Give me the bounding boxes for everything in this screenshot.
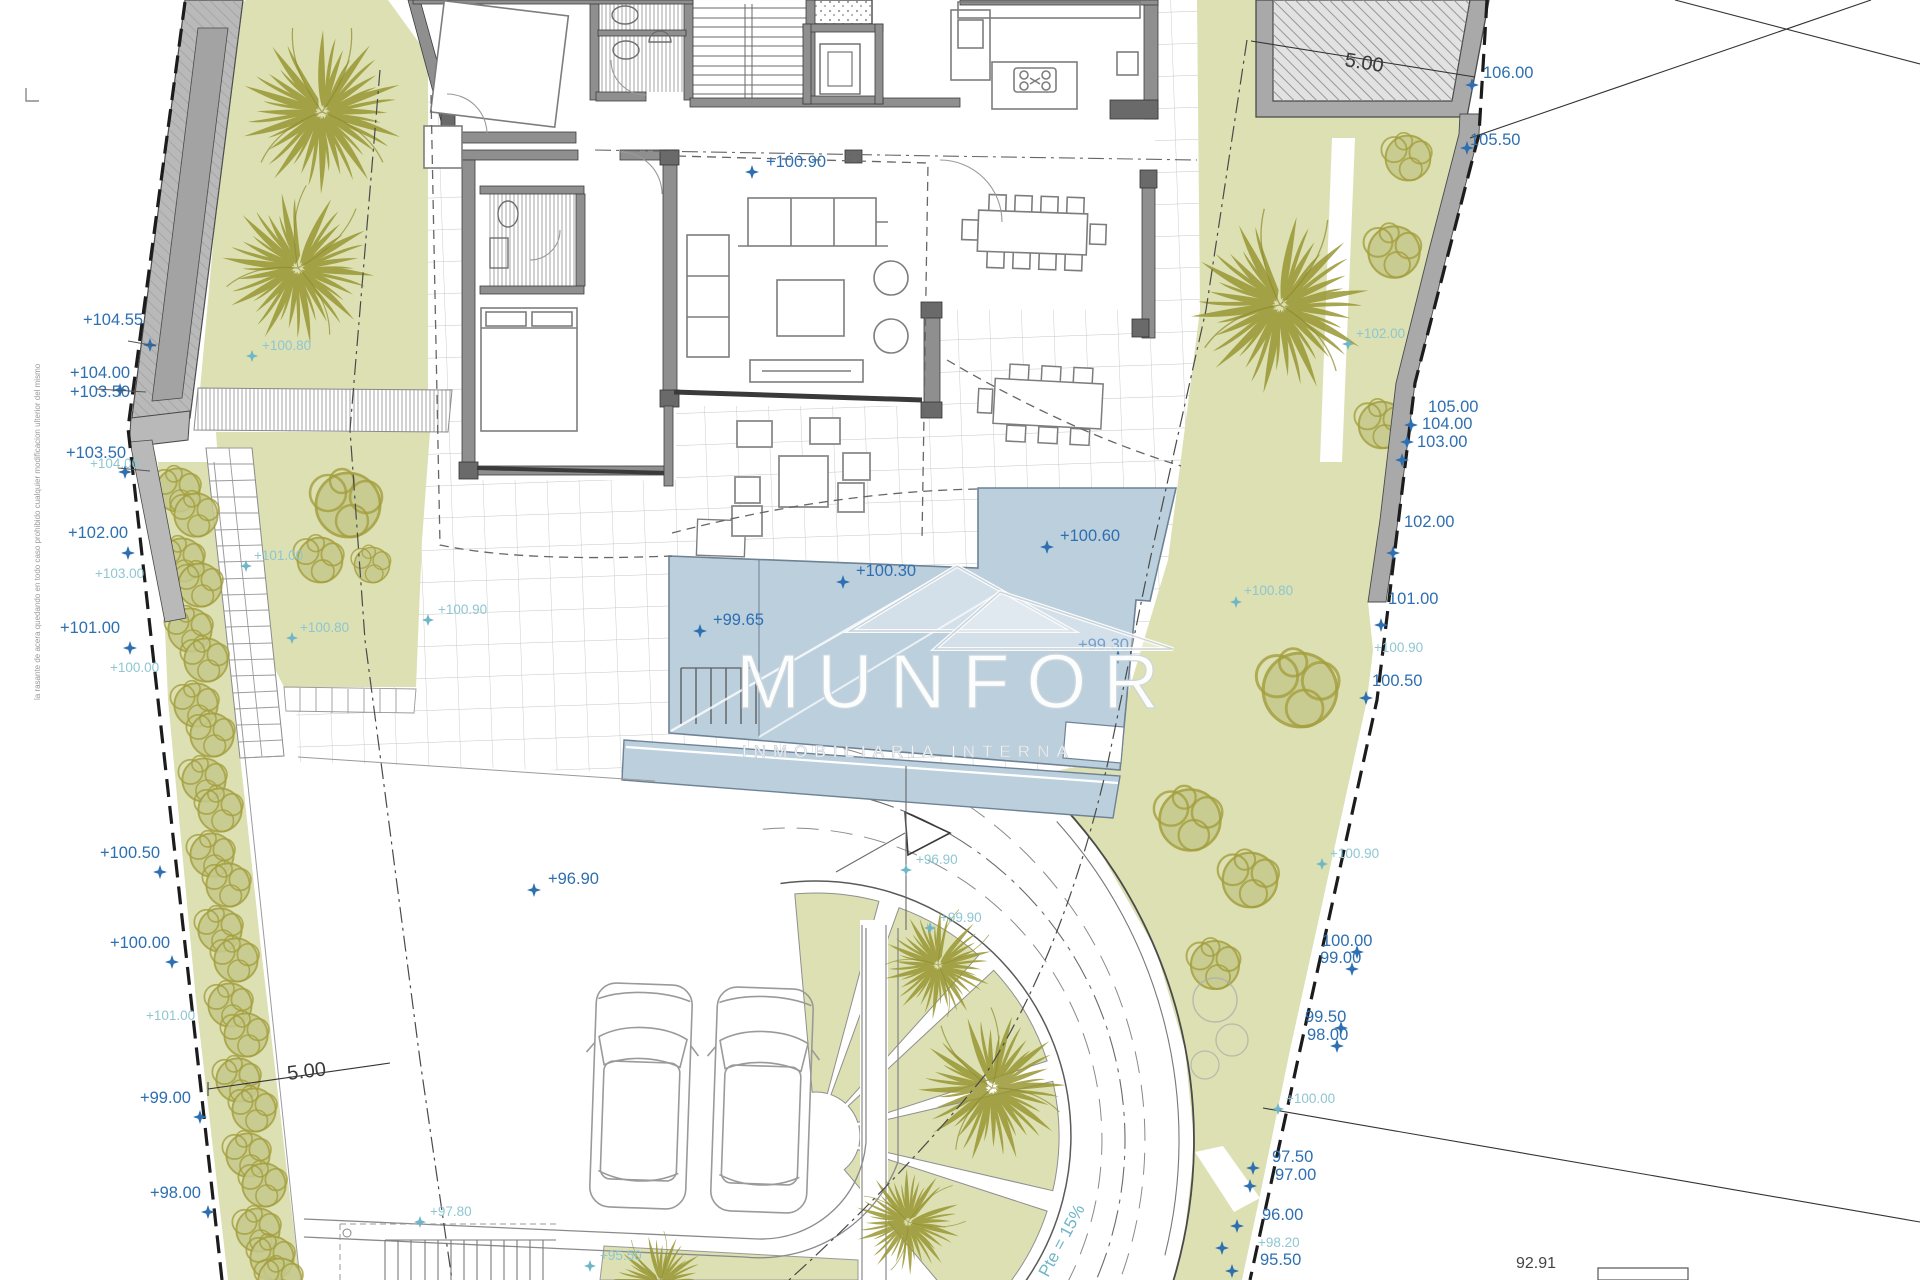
svg-text:101.00: 101.00 (1388, 590, 1438, 608)
svg-text:+100.30: +100.30 (856, 562, 916, 580)
svg-text:97.00: 97.00 (1275, 1166, 1316, 1184)
svg-text:+104.55: +104.55 (83, 311, 143, 329)
svg-text:97.50: 97.50 (1272, 1148, 1313, 1166)
svg-text:+100.00: +100.00 (110, 660, 159, 675)
svg-text:+100.80: +100.80 (1244, 583, 1293, 598)
svg-text:95.50: 95.50 (1260, 1251, 1301, 1269)
svg-text:+100.80: +100.80 (300, 620, 349, 635)
svg-text:+97.80: +97.80 (430, 1204, 472, 1219)
svg-text:92.91: 92.91 (1516, 1255, 1556, 1272)
svg-text:+96.90: +96.90 (916, 852, 958, 867)
svg-text:+100.00: +100.00 (110, 934, 170, 952)
svg-text:5.00: 5.00 (286, 1058, 327, 1085)
svg-text:104.00: 104.00 (1422, 415, 1472, 433)
svg-text:+96.90: +96.90 (548, 870, 599, 888)
svg-text:+99.00: +99.00 (140, 1089, 191, 1107)
svg-text:+100.60: +100.60 (1060, 527, 1120, 545)
svg-text:+99.90: +99.90 (940, 910, 982, 925)
svg-text:105.50: 105.50 (1470, 131, 1520, 149)
svg-text:+104.00: +104.00 (90, 456, 139, 471)
svg-text:+103.00: +103.00 (95, 566, 144, 581)
svg-text:+101.00: +101.00 (60, 619, 120, 637)
svg-text:INMOBILIARIA INTERNA: INMOBILIARIA INTERNA (742, 742, 1075, 761)
svg-text:100.50: 100.50 (1372, 672, 1422, 690)
svg-text:+99.65: +99.65 (713, 611, 764, 629)
svg-text:106.00: 106.00 (1483, 64, 1533, 82)
svg-text:+98.20: +98.20 (1258, 1235, 1300, 1250)
svg-text:+101.00: +101.00 (146, 1008, 195, 1023)
svg-text:+101.00: +101.00 (254, 548, 303, 563)
svg-text:la rasante de acera quedando e: la rasante de acera quedando en todo cas… (33, 363, 42, 700)
svg-text:102.00: 102.00 (1404, 513, 1454, 531)
svg-text:+100.90: +100.90 (438, 602, 487, 617)
svg-text:100.00: 100.00 (1322, 932, 1372, 950)
svg-text:+100.90: +100.90 (1330, 846, 1379, 861)
svg-text:+95.50: +95.50 (600, 1248, 642, 1263)
svg-text:99.50: 99.50 (1305, 1008, 1346, 1026)
svg-text:+100.80: +100.80 (262, 338, 311, 353)
svg-text:+100.90: +100.90 (766, 153, 826, 171)
svg-text:96.00: 96.00 (1262, 1206, 1303, 1224)
svg-text:+100.90: +100.90 (1374, 640, 1423, 655)
svg-text:103.00: 103.00 (1417, 433, 1467, 451)
svg-text:+102.00: +102.00 (1356, 326, 1405, 341)
svg-text:MUNFOR: MUNFOR (736, 639, 1176, 725)
svg-text:105.00: 105.00 (1428, 398, 1478, 416)
svg-text:+98.00: +98.00 (150, 1184, 201, 1202)
svg-text:+100.00: +100.00 (1286, 1091, 1335, 1106)
svg-text:+102.00: +102.00 (68, 524, 128, 542)
svg-text:+100.50: +100.50 (100, 844, 160, 862)
svg-text:+104.00: +104.00 (70, 364, 130, 382)
